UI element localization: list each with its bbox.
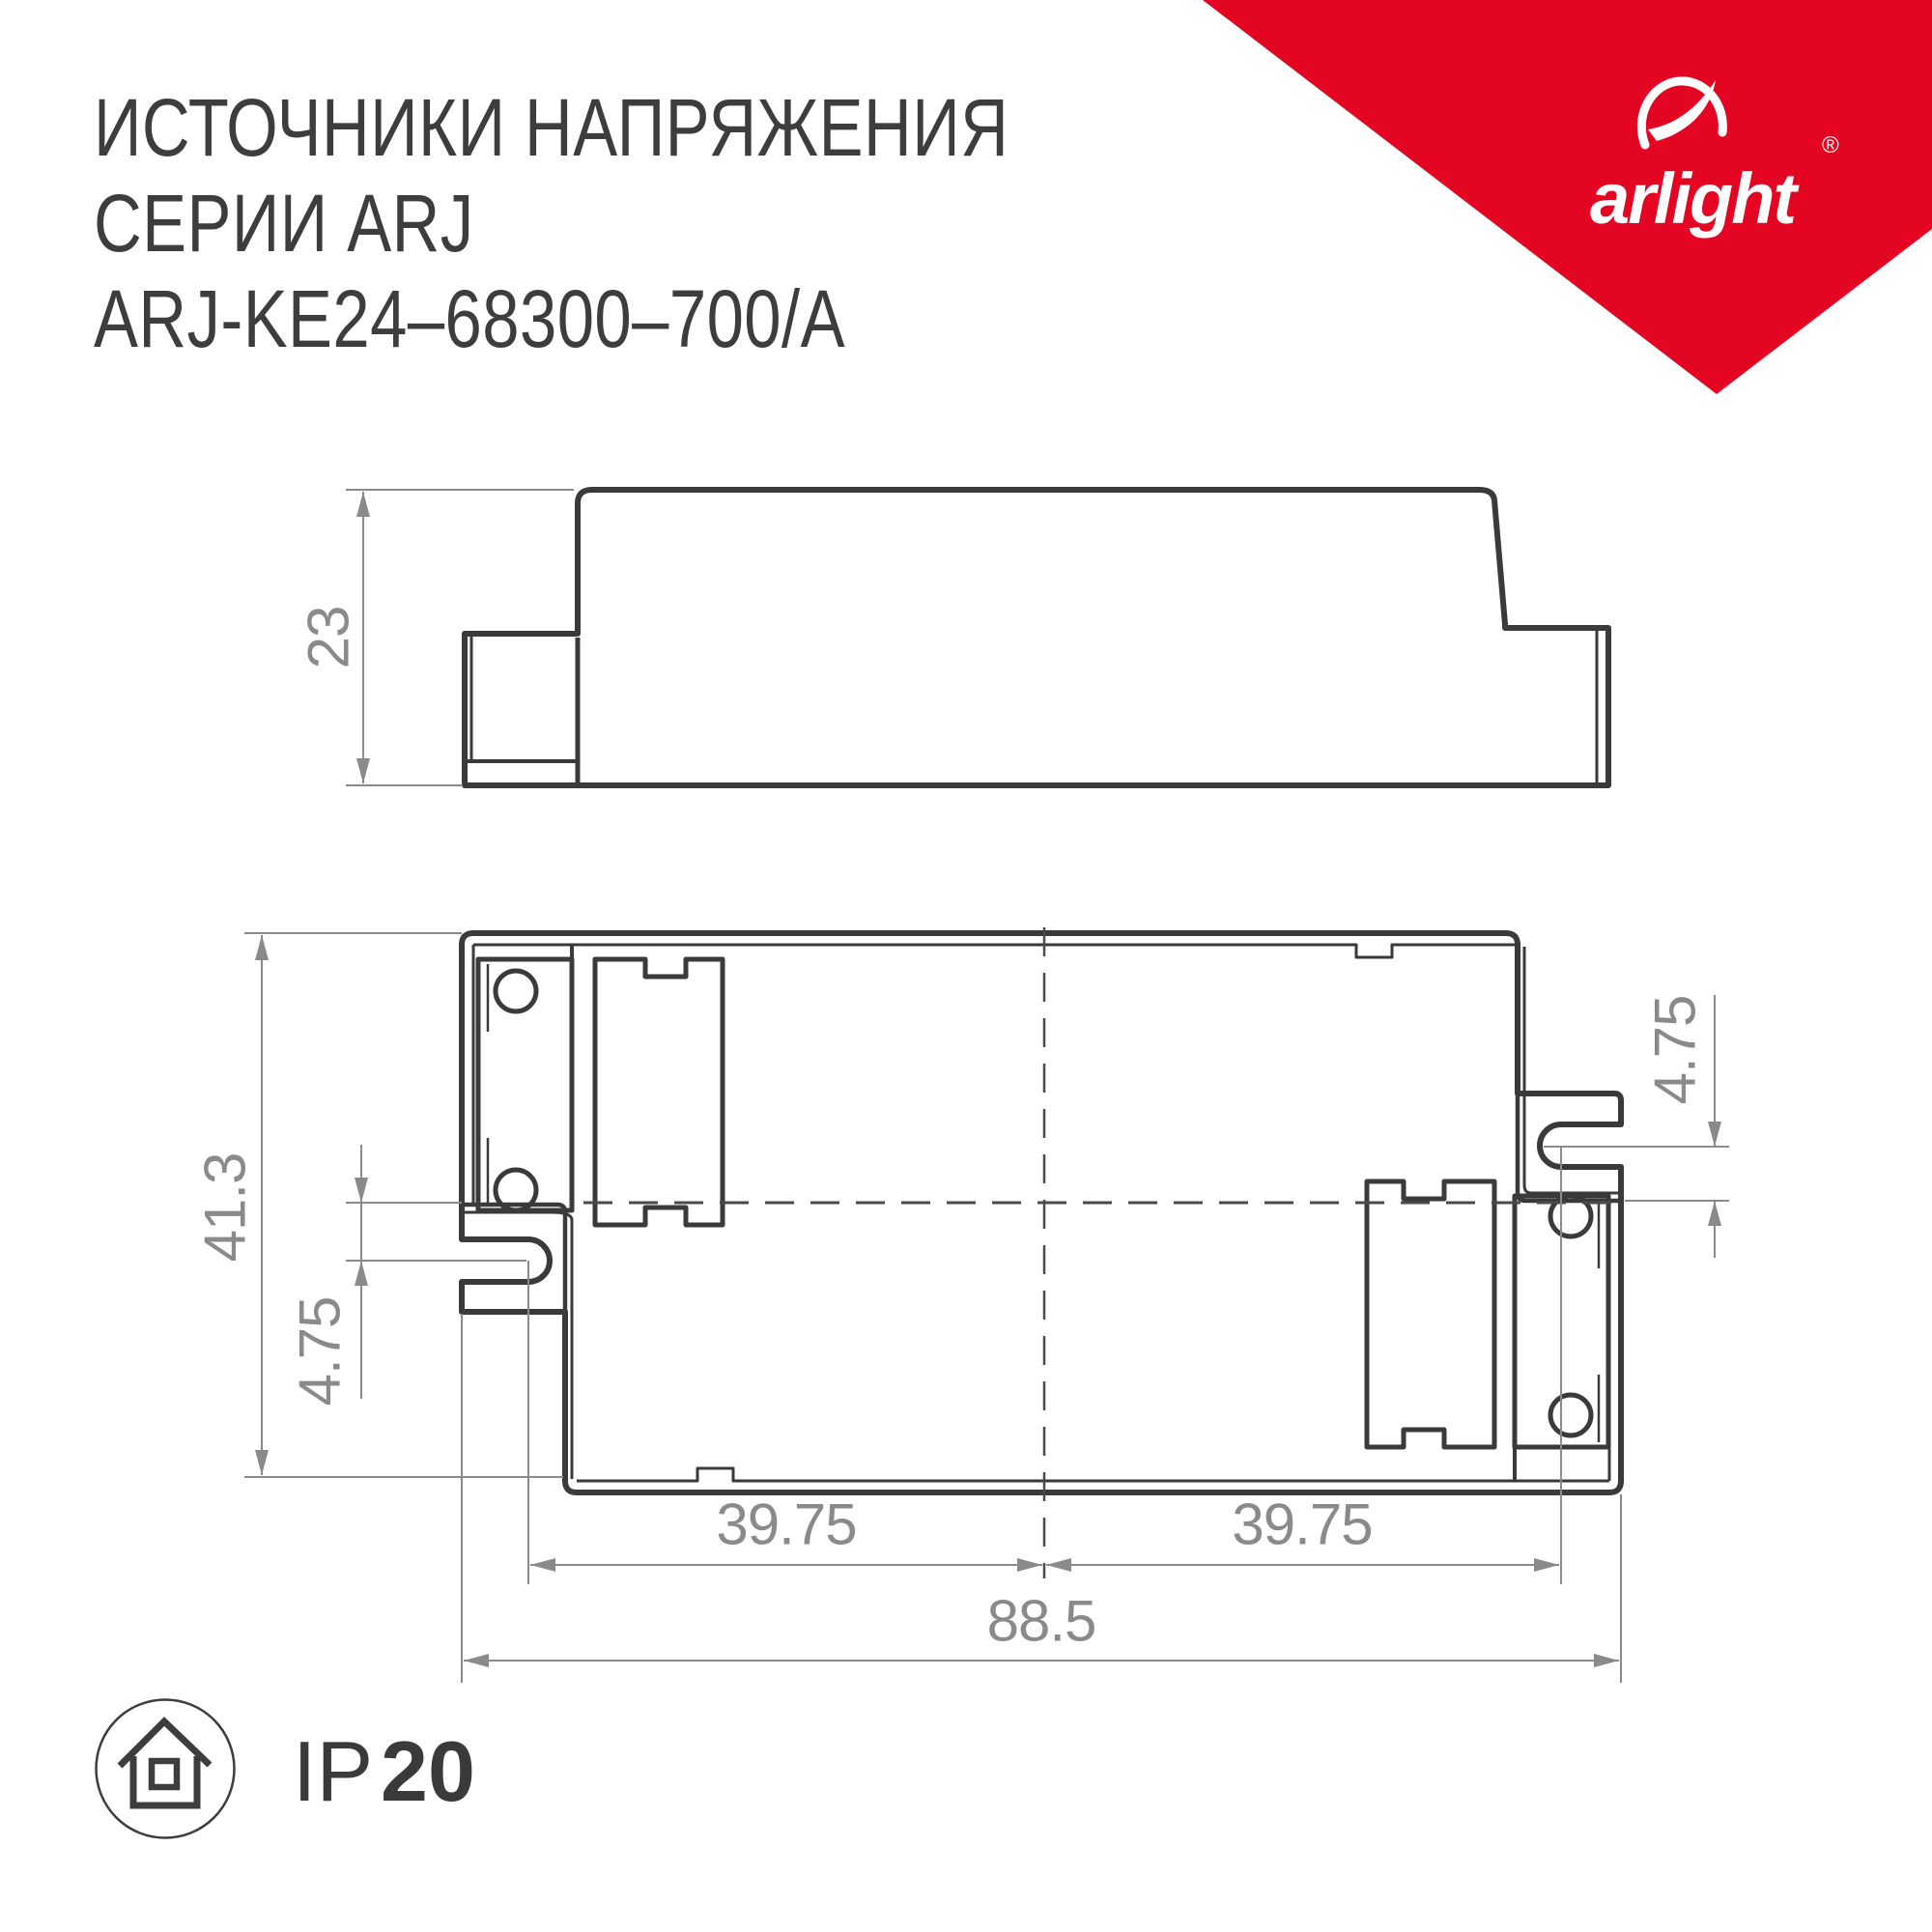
datasheet-page: ИСТОЧНИКИ НАПРЯЖЕНИЯ СЕРИИ ARJ ARJ-KE24–… xyxy=(0,0,1932,1932)
top-view-right-step-outer xyxy=(1518,1095,1621,1201)
side-view-drawing xyxy=(465,490,1608,785)
top-view-left-step-inner xyxy=(464,1212,572,1479)
house-door-icon xyxy=(152,1761,177,1787)
arlight-logo-text: arlight xyxy=(1590,158,1800,239)
top-view-right-bracket-hole-2 xyxy=(1550,1395,1591,1435)
dim-39-75-right-label: 39.75 xyxy=(1232,1492,1372,1557)
top-view-inner-wall-top xyxy=(473,945,1518,957)
top-view-right-snap-bracket xyxy=(1367,1181,1494,1447)
dim-41-3-label: 41.3 xyxy=(193,1153,258,1263)
dim-39-75-left-label: 39.75 xyxy=(716,1492,856,1557)
dim-4-75-right-arrow-up xyxy=(1708,1201,1721,1226)
top-view-right-step-inner xyxy=(1524,947,1619,1193)
brand-banner-triangle xyxy=(1203,0,1932,394)
indoor-use-icon xyxy=(97,1700,235,1838)
brand-banner: arlight ® xyxy=(1203,0,1932,394)
dim-4-75-left-arrow-up xyxy=(355,1261,368,1286)
side-view-outline xyxy=(465,490,1608,785)
dim-88-5-label: 88.5 xyxy=(987,1589,1096,1654)
ip-rating-badge: IP 20 xyxy=(97,1700,475,1838)
top-view-left-bracket-hole-1 xyxy=(496,971,536,1011)
dim-23-label: 23 xyxy=(297,607,361,669)
dim-39-75-left-arrow-left xyxy=(530,1558,555,1572)
dim-39-75-right: 39.75 xyxy=(1046,1492,1559,1573)
dim-4-75-left-label: 4.75 xyxy=(288,1297,353,1406)
dim-88-5-arrow-right xyxy=(1594,1654,1619,1667)
dim-41-3-arrow-down xyxy=(255,1450,269,1475)
top-view-drawing xyxy=(462,927,1621,1578)
dim-41-3-arrow-up xyxy=(255,935,269,960)
ip-label-prefix: IP xyxy=(293,1723,373,1819)
top-view-inner-wall-bottom xyxy=(577,1468,1609,1481)
dim-23: 23 xyxy=(297,490,575,785)
dim-4-75-right-arrow-down xyxy=(1708,1122,1721,1147)
dim-39-75-right-arrow-left xyxy=(1046,1558,1071,1572)
top-view-dimensions: 41.3 4.75 4.75 xyxy=(193,933,1730,1683)
top-view-left-snap-bracket xyxy=(595,959,723,1225)
dim-4-75-left: 4.75 xyxy=(288,1145,527,1406)
dim-23-arrow-up xyxy=(356,492,370,517)
dim-4-75-right-label: 4.75 xyxy=(1643,996,1708,1105)
dim-23-arrow-down xyxy=(356,758,370,783)
top-view-outline xyxy=(462,933,1621,1492)
dim-88-5: 88.5 xyxy=(464,1589,1619,1668)
dim-39-75-left: 39.75 xyxy=(530,1492,1042,1573)
dim-88-5-arrow-left xyxy=(464,1654,489,1667)
dim-39-75-right-arrow-right xyxy=(1534,1558,1559,1572)
ip-label-value: 20 xyxy=(381,1723,475,1819)
technical-drawing-canvas: arlight ® 23 xyxy=(0,0,1932,1932)
dim-4-75-left-arrow-down xyxy=(355,1178,368,1203)
registered-trademark-symbol: ® xyxy=(1822,132,1839,158)
dim-39-75-left-arrow-right xyxy=(1017,1558,1042,1572)
